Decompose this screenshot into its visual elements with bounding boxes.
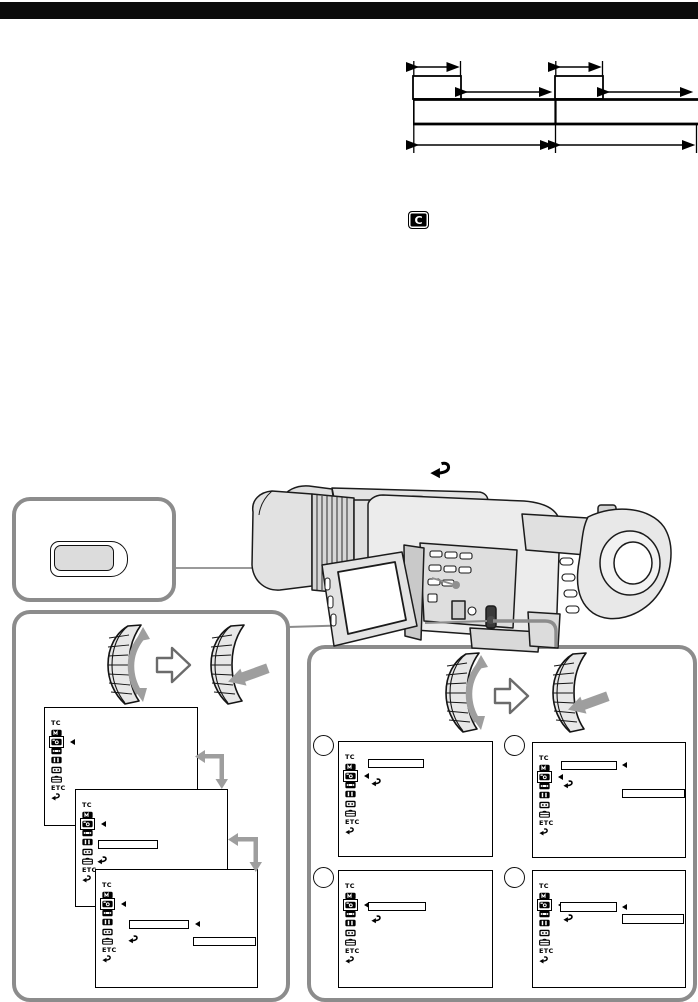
lcd-vf-set-icon — [102, 918, 113, 927]
manual-page: C TCETC TCETC TCETC TCETC TCETC TCETC TC… — [0, 0, 698, 1002]
lcd-vf-set-icon — [345, 790, 356, 799]
eyepiece-outer — [600, 531, 660, 595]
menu-button-well — [50, 541, 128, 577]
cm-set-icon — [345, 928, 356, 937]
camera-set-icon — [51, 737, 75, 746]
lcd-vf-set-icon — [539, 919, 550, 928]
focus-ring — [312, 494, 354, 594]
tc-label: TC — [51, 719, 61, 728]
cursor-left-icon — [619, 762, 627, 768]
return-mark-icon — [430, 463, 448, 478]
return-icon — [371, 778, 382, 788]
return-icon — [345, 956, 355, 965]
tape-set-icon — [345, 937, 356, 946]
tc-label: TC — [345, 882, 355, 891]
cm-set-icon — [539, 800, 550, 809]
lcd-vf-set-icon — [539, 791, 550, 800]
menu-option-box — [98, 840, 158, 849]
cursor-left-icon — [555, 774, 563, 780]
cursor-left-icon — [619, 904, 627, 910]
cursor-left-icon — [192, 921, 200, 927]
cassette-memory-icon: C — [408, 211, 429, 229]
return-icon — [97, 856, 108, 866]
menu-option-box — [193, 937, 256, 946]
cm-set-icon — [51, 765, 62, 774]
lcd-screen — [338, 562, 406, 634]
camera-set-icon — [82, 819, 106, 828]
eyecup — [578, 509, 671, 618]
etc-label: ETC — [345, 817, 360, 826]
zoom-ring — [354, 500, 370, 592]
tape-set-icon — [82, 856, 93, 865]
etc-label: ETC — [102, 945, 117, 954]
return-icon — [82, 875, 92, 884]
vcr-set-icon — [539, 782, 550, 791]
tc-label: TC — [82, 801, 92, 810]
cursor-left-icon — [361, 773, 369, 779]
menu-option-box — [560, 902, 617, 912]
return-icon — [371, 915, 382, 925]
menu-screen-L3: TCETC — [95, 869, 258, 988]
tc-label: TC — [102, 881, 112, 890]
etc-label: ETC — [539, 818, 554, 827]
camera-set-icon — [345, 771, 369, 780]
menu-screen-R3: TCETC — [338, 870, 493, 988]
tape-set-icon — [51, 774, 62, 783]
vcr-set-icon — [102, 909, 113, 918]
lens-hood — [252, 491, 312, 590]
tape-set-icon — [539, 809, 550, 818]
camera-body — [368, 495, 560, 639]
menu-option-box — [129, 920, 189, 929]
lcd-hinge — [404, 545, 424, 640]
menu-option-box — [622, 914, 684, 924]
vcr-set-icon — [539, 910, 550, 919]
return-icon — [539, 828, 549, 837]
camera-set-icon — [345, 900, 369, 909]
vcr-set-icon — [345, 910, 356, 919]
etc-label: ETC — [51, 783, 66, 792]
menu-screen-R1: TCETC — [338, 741, 493, 857]
step-circle-2 — [504, 735, 525, 756]
tc-label: TC — [539, 754, 549, 763]
return-icon — [128, 935, 139, 945]
lcd-vf-set-icon — [82, 838, 93, 847]
lcd-vf-set-icon — [345, 919, 356, 928]
return-icon — [563, 914, 574, 924]
vcr-set-icon — [51, 747, 62, 756]
tape-set-icon — [102, 936, 113, 945]
vcr-set-icon — [82, 829, 93, 838]
cm-set-icon — [345, 799, 356, 808]
cursor-left-icon — [118, 901, 126, 907]
menu-button-dot — [452, 581, 460, 589]
dial-callout-line — [288, 621, 490, 627]
sel-push-exec-dial-dot — [487, 616, 495, 624]
return-icon — [539, 956, 549, 965]
menu-option-box — [622, 789, 685, 798]
vcr-set-icon — [345, 781, 356, 790]
connector-cover — [452, 601, 465, 619]
etc-label: ETC — [539, 946, 554, 955]
carry-handle — [332, 488, 488, 513]
menu-option-box — [561, 761, 617, 770]
menu-button — [54, 545, 114, 571]
back-control-panel — [420, 543, 517, 628]
cm-set-icon — [539, 928, 550, 937]
return-icon — [345, 827, 355, 836]
tc-label: TC — [539, 882, 549, 891]
tc-label: TC — [345, 753, 355, 762]
cassette-memory-label: C — [414, 214, 422, 227]
cursor-left-icon — [98, 821, 106, 827]
tape-set-icon — [539, 937, 550, 946]
cm-set-icon — [102, 927, 113, 936]
interval-timing-diagram — [413, 61, 698, 153]
return-icon — [51, 793, 61, 802]
menu-option-box — [368, 759, 424, 768]
etc-label: ETC — [345, 946, 360, 955]
menu-screen-R4: TCETC — [532, 870, 686, 988]
microphone — [278, 486, 338, 533]
cursor-left-icon — [67, 739, 75, 745]
camera-set-icon — [102, 899, 126, 908]
camcorder-illustration — [252, 486, 671, 652]
camera-set-icon — [539, 772, 563, 781]
header-bar — [0, 2, 698, 19]
menu-button-callout-box — [12, 497, 176, 602]
return-icon — [102, 955, 112, 964]
viewfinder-arm — [522, 514, 601, 556]
timing-pulse-1 — [413, 76, 461, 99]
lcd-vf-set-icon — [51, 756, 62, 765]
dial-to-box-stub — [493, 621, 556, 647]
timing-pulse-2 — [555, 76, 603, 99]
callout-terminations — [425, 578, 556, 647]
menu-button-callout-line — [176, 568, 452, 584]
menu-screen-R2: TCETC — [532, 742, 686, 858]
menu-option-box — [368, 902, 426, 911]
tape-set-icon — [345, 808, 356, 817]
cm-set-icon — [82, 847, 93, 856]
sel-push-exec-dial — [486, 606, 496, 628]
step-circle-4 — [504, 867, 525, 888]
lcd-panel — [322, 552, 417, 646]
eyepiece-lens — [614, 542, 652, 584]
return-icon — [563, 780, 574, 790]
step-circle-1 — [313, 735, 334, 756]
step-circle-3 — [313, 867, 334, 888]
